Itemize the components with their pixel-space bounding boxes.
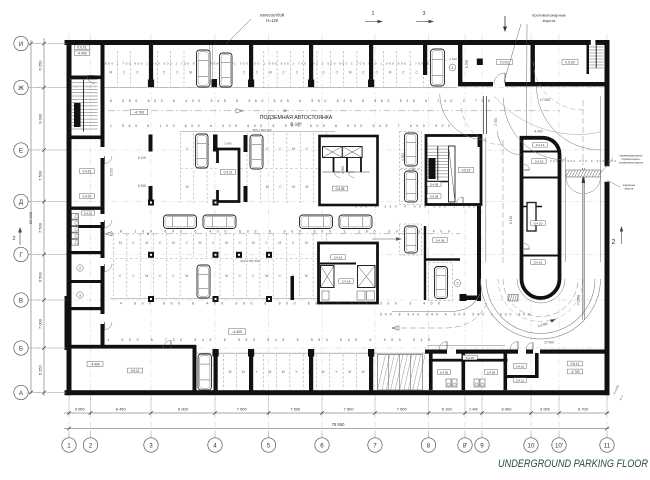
svg-text:0.4.20: 0.4.20 bbox=[534, 221, 543, 225]
svg-text:7 500: 7 500 bbox=[290, 407, 301, 412]
svg-text:колесоотбой: колесоотбой bbox=[260, 13, 284, 18]
svg-text:2 400: 2 400 bbox=[469, 408, 478, 412]
svg-text:9: 9 bbox=[480, 442, 484, 449]
svg-text:6 900: 6 900 bbox=[138, 184, 146, 188]
svg-text:6 700: 6 700 bbox=[578, 407, 589, 412]
svg-text:М: М bbox=[269, 71, 272, 75]
svg-text:М: М bbox=[185, 274, 188, 278]
svg-text:0.4.07: 0.4.07 bbox=[466, 356, 475, 360]
svg-text:0.4.09: 0.4.09 bbox=[487, 370, 496, 374]
svg-text:17 000: 17 000 bbox=[544, 341, 554, 345]
svg-text:И: И bbox=[19, 41, 23, 48]
svg-text:секционные ворота: секционные ворота bbox=[619, 162, 644, 165]
svg-text:0.4.02: 0.4.02 bbox=[84, 211, 92, 215]
svg-text:М: М bbox=[186, 185, 189, 189]
svg-text:М: М bbox=[119, 241, 122, 245]
svg-text:7 000: 7 000 bbox=[38, 318, 43, 329]
svg-text:-4.400: -4.400 bbox=[77, 52, 87, 56]
svg-text:8 250: 8 250 bbox=[110, 168, 114, 176]
svg-text:0.4.08: 0.4.08 bbox=[436, 238, 445, 242]
svg-text:6 250: 6 250 bbox=[38, 60, 43, 71]
svg-text:Е: Е bbox=[19, 147, 23, 154]
svg-text:2: 2 bbox=[612, 239, 616, 246]
svg-text:4 300: 4 300 bbox=[341, 166, 345, 174]
svg-text:17 000: 17 000 bbox=[540, 98, 550, 102]
svg-text:М: М bbox=[225, 241, 228, 245]
svg-text:Б: Б bbox=[19, 345, 23, 352]
svg-text:6 200: 6 200 bbox=[465, 60, 469, 68]
svg-text:М: М bbox=[145, 241, 148, 245]
svg-text:М: М bbox=[292, 147, 295, 151]
svg-text:11: 11 bbox=[604, 442, 611, 449]
svg-text:М: М bbox=[145, 274, 148, 278]
svg-text:UNDERGROUND PARKING FLOOR: UNDERGROUND PARKING FLOOR bbox=[498, 458, 648, 470]
svg-text:0.4.02: 0.4.02 bbox=[83, 194, 92, 198]
svg-text:М: М bbox=[412, 167, 415, 171]
svg-text:3 950: 3 950 bbox=[540, 407, 551, 412]
svg-text:0.4.05: 0.4.05 bbox=[440, 370, 449, 374]
svg-text:6 250: 6 250 bbox=[38, 364, 43, 375]
svg-text:0.5.15: 0.5.15 bbox=[462, 168, 471, 172]
svg-text:М: М bbox=[109, 71, 112, 75]
svg-text:М: М bbox=[242, 370, 245, 374]
svg-text:2: 2 bbox=[457, 282, 459, 286]
svg-text:В: В bbox=[19, 297, 23, 304]
svg-text:М: М bbox=[348, 370, 351, 374]
svg-text:2 140: 2 140 bbox=[449, 57, 457, 61]
svg-text:0.4.11: 0.4.11 bbox=[516, 378, 524, 382]
svg-text:0.4.01: 0.4.01 bbox=[83, 169, 92, 173]
svg-text:М: М bbox=[268, 370, 271, 374]
svg-text:2: 2 bbox=[13, 236, 16, 242]
svg-text:0.4.21: 0.4.21 bbox=[224, 170, 233, 174]
svg-text:50 000: 50 000 bbox=[28, 211, 33, 224]
svg-text:Н=120: Н=120 bbox=[266, 18, 279, 23]
svg-text:i=15%: i=15% bbox=[577, 294, 581, 305]
svg-text:М: М bbox=[265, 274, 268, 278]
svg-text:противопожарные: противопожарные bbox=[532, 13, 566, 18]
svg-text:0.4.22: 0.4.22 bbox=[534, 260, 543, 264]
svg-text:М: М bbox=[229, 370, 232, 374]
svg-text:3: 3 bbox=[79, 294, 81, 298]
svg-text:9 000: 9 000 bbox=[178, 407, 189, 412]
svg-text:ПОДЗЕМНАЯ АВТОСТОЯНКА: ПОДЗЕМНАЯ АВТОСТОЯНКА bbox=[260, 115, 333, 121]
svg-text:М: М bbox=[322, 370, 325, 374]
svg-text:М: М bbox=[305, 241, 308, 245]
svg-text:М: М bbox=[172, 241, 175, 245]
svg-text:М: М bbox=[225, 274, 228, 278]
svg-text:0.5.08: 0.5.08 bbox=[336, 187, 345, 191]
svg-text:6 430: 6 430 bbox=[509, 216, 513, 224]
svg-text:М: М bbox=[266, 185, 269, 189]
svg-text:М: М bbox=[199, 241, 202, 245]
svg-text:0.9.11: 0.9.11 bbox=[131, 369, 140, 373]
svg-text:М: М bbox=[252, 241, 255, 245]
svg-text:М: М bbox=[349, 71, 352, 75]
svg-text:0.0.01: 0.0.01 bbox=[77, 46, 86, 50]
svg-text:1: 1 bbox=[372, 11, 375, 17]
svg-text:2: 2 bbox=[89, 442, 93, 449]
svg-text:М: М bbox=[305, 274, 308, 278]
svg-text:8 450: 8 450 bbox=[116, 407, 127, 412]
svg-text:-4.400: -4.400 bbox=[533, 130, 542, 134]
svg-text:0.5.12: 0.5.12 bbox=[571, 362, 580, 366]
svg-text:-4.400: -4.400 bbox=[90, 362, 100, 366]
svg-text:7 500: 7 500 bbox=[38, 170, 43, 181]
svg-text:0.4.18: 0.4.18 bbox=[342, 279, 351, 283]
svg-text:В-1/Н: В-1/Н bbox=[290, 122, 301, 127]
svg-text:4 300: 4 300 bbox=[401, 153, 405, 161]
svg-text:600 2 300 300 2 300 20: 600 2 300 300 2 300 200 bbox=[550, 159, 616, 163]
svg-text:0.0.02: 0.0.02 bbox=[500, 60, 509, 64]
svg-text:М: М bbox=[292, 185, 295, 189]
svg-text:7 500: 7 500 bbox=[397, 407, 408, 412]
svg-text:7 500: 7 500 bbox=[38, 222, 43, 233]
svg-text:5: 5 bbox=[267, 442, 271, 449]
svg-text:ворота: ворота bbox=[543, 18, 556, 23]
svg-text:6 100: 6 100 bbox=[138, 156, 146, 160]
svg-text:М: М bbox=[305, 185, 308, 189]
svg-text:М: М bbox=[282, 370, 285, 374]
svg-text:0.4.05: 0.4.05 bbox=[430, 182, 439, 186]
svg-text:3 050: 3 050 bbox=[75, 407, 86, 412]
svg-text:5 100: 5 100 bbox=[442, 407, 453, 412]
svg-text:-4.700: -4.700 bbox=[570, 370, 579, 374]
svg-text:6 500: 6 500 bbox=[38, 271, 43, 282]
svg-text:4: 4 bbox=[213, 442, 217, 449]
svg-text:М: М bbox=[389, 71, 392, 75]
svg-text:0.4.15: 0.4.15 bbox=[535, 159, 544, 163]
svg-text:3 900: 3 900 bbox=[224, 142, 232, 146]
svg-text:10′: 10′ bbox=[555, 442, 564, 449]
svg-text:ворота: ворота bbox=[625, 188, 634, 191]
svg-text:0.4.13: 0.4.13 bbox=[536, 143, 545, 147]
svg-text:300 1 900 300: 300 1 900 300 bbox=[252, 128, 272, 132]
svg-text:6 900: 6 900 bbox=[501, 407, 512, 412]
svg-text:10: 10 bbox=[528, 442, 535, 449]
svg-text:0.0.08: 0.0.08 bbox=[430, 194, 439, 198]
svg-text:8: 8 bbox=[427, 442, 431, 449]
svg-text:7 500: 7 500 bbox=[237, 407, 248, 412]
svg-text:М: М bbox=[189, 71, 192, 75]
svg-text:М: М bbox=[362, 370, 365, 374]
svg-text:0.4.16: 0.4.16 bbox=[334, 255, 343, 259]
svg-text:М: М bbox=[278, 241, 281, 245]
svg-text:6: 6 bbox=[320, 442, 324, 449]
svg-text:Ж: Ж bbox=[18, 85, 24, 92]
svg-text:2 700: 2 700 bbox=[494, 118, 498, 126]
svg-text:1: 1 bbox=[67, 442, 71, 449]
svg-text:7: 7 bbox=[373, 442, 377, 449]
svg-text:3: 3 bbox=[149, 442, 153, 449]
svg-text:3: 3 bbox=[423, 11, 426, 17]
svg-text:-4.700: -4.700 bbox=[134, 110, 144, 114]
svg-text:600 1 050 300: 600 1 050 300 bbox=[240, 259, 260, 263]
svg-text:4: 4 bbox=[452, 66, 454, 70]
svg-text:600 1 700 600 1 900 600 1 700: 600 1 700 600 1 900 600 1 700 600 1 900 … bbox=[105, 62, 435, 66]
svg-text:0.4.10: 0.4.10 bbox=[516, 364, 525, 368]
svg-text:9 000: 9 000 bbox=[38, 113, 43, 124]
svg-text:2: 2 bbox=[79, 267, 81, 271]
svg-text:0.0.03: 0.0.03 bbox=[565, 60, 574, 64]
svg-text:-4.400: -4.400 bbox=[232, 330, 242, 334]
svg-text:7 500: 7 500 bbox=[343, 407, 354, 412]
svg-text:75 550: 75 550 bbox=[332, 422, 345, 427]
